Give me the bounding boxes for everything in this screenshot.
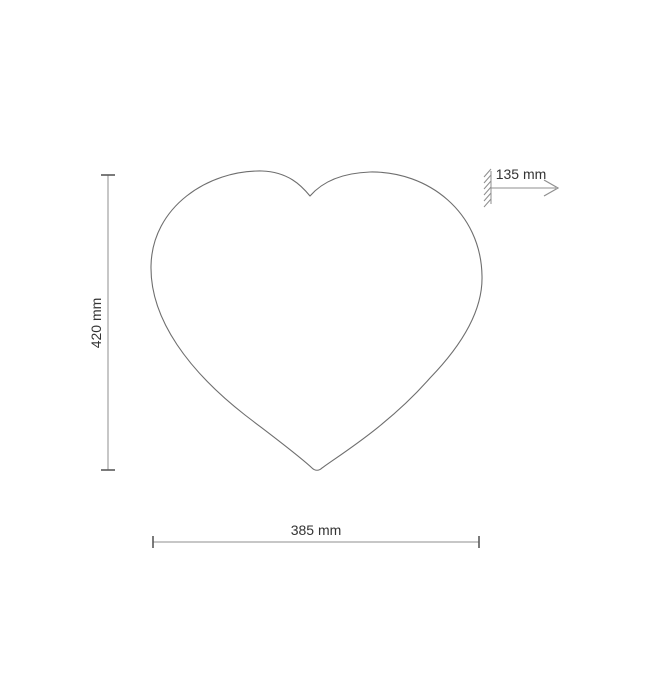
depth-dimension-label: 135 mm xyxy=(496,167,547,181)
heart-outline xyxy=(151,171,482,470)
height-dimension-label: 420 mm xyxy=(89,298,103,349)
dimension-diagram: 420 mm 385 mm 135 mm xyxy=(0,0,650,677)
width-dimension-label: 385 mm xyxy=(291,523,342,537)
wall-hatch-icon xyxy=(484,169,491,207)
